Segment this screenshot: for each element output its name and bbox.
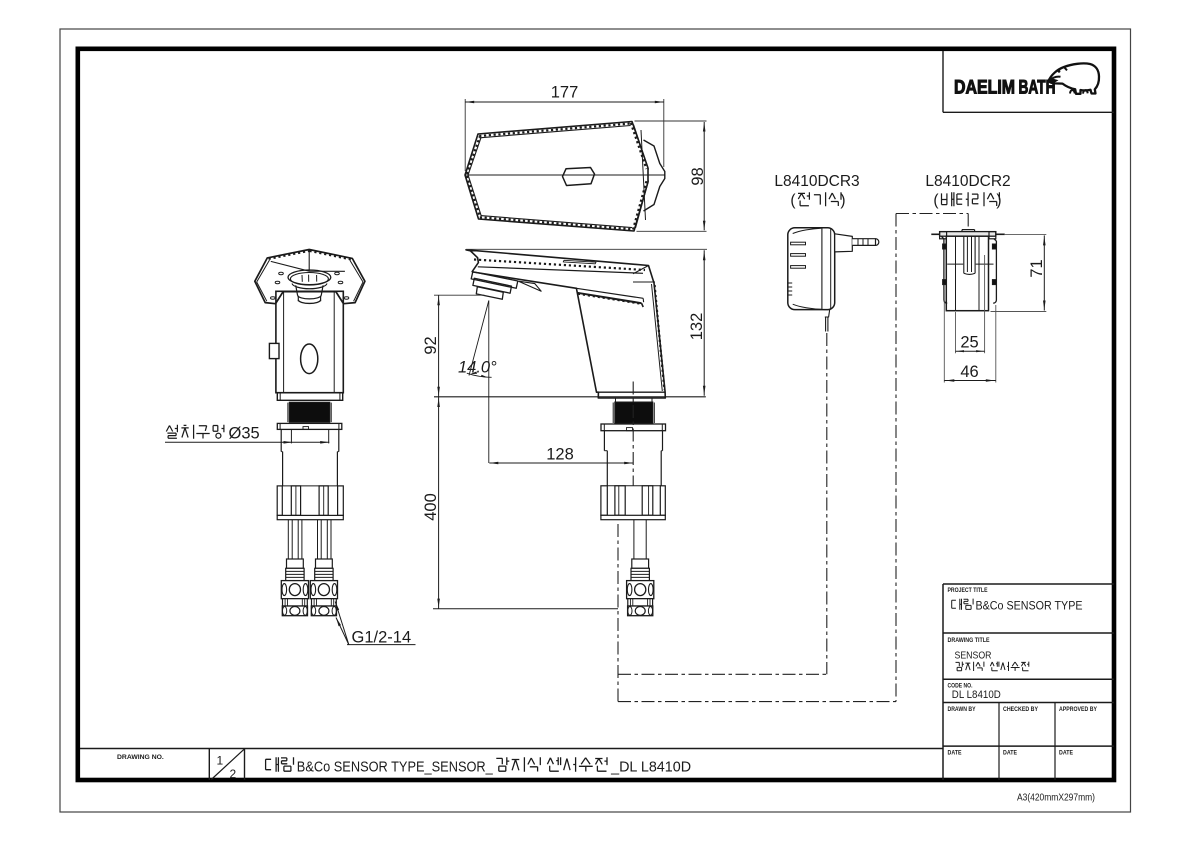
- svg-text:CHECKED BY: CHECKED BY: [1003, 706, 1039, 713]
- svg-text:DATE: DATE: [1003, 750, 1018, 757]
- svg-text:Ø35: Ø35: [229, 425, 260, 443]
- svg-text:L8410DCR3: L8410DCR3: [774, 173, 859, 190]
- svg-text:98: 98: [689, 167, 707, 185]
- svg-text:71: 71: [1028, 259, 1046, 277]
- svg-text:14.0°: 14.0°: [458, 359, 497, 377]
- svg-text:): ): [840, 192, 845, 209]
- svg-text:A3(420mmX297mm): A3(420mmX297mm): [1017, 792, 1095, 804]
- svg-text:SENSOR: SENSOR: [955, 651, 992, 662]
- svg-text:DL L8410D: DL L8410D: [952, 689, 1001, 701]
- svg-text:177: 177: [551, 84, 579, 102]
- svg-text:DRAWING TITLE: DRAWING TITLE: [948, 637, 991, 644]
- svg-text:DAELIM: DAELIM: [954, 77, 1015, 99]
- svg-text:2: 2: [230, 767, 237, 781]
- svg-text:G1/2-14: G1/2-14: [352, 629, 412, 647]
- svg-text:92: 92: [422, 336, 440, 354]
- svg-text:APPROVED BY: APPROVED BY: [1059, 706, 1098, 713]
- svg-text:B&Co SENSOR TYPE_SENSOR_: B&Co SENSOR TYPE_SENSOR_: [297, 759, 494, 776]
- svg-text:DRAWING NO.: DRAWING NO.: [117, 754, 164, 761]
- svg-text:L8410DCR2: L8410DCR2: [925, 173, 1010, 190]
- svg-text:B&Co SENSOR TYPE: B&Co SENSOR TYPE: [976, 601, 1083, 613]
- svg-text:(: (: [790, 192, 796, 209]
- svg-text:46: 46: [960, 363, 978, 381]
- svg-text:400: 400: [422, 493, 440, 521]
- svg-text:25: 25: [960, 334, 978, 352]
- svg-text:DATE: DATE: [1059, 750, 1074, 757]
- svg-text:(: (: [933, 192, 939, 209]
- svg-text:128: 128: [546, 446, 574, 464]
- svg-text:): ): [996, 192, 1001, 209]
- svg-text:1: 1: [217, 754, 224, 768]
- svg-text:DATE: DATE: [948, 750, 963, 757]
- svg-text:PROJECT TITLE: PROJECT TITLE: [948, 587, 989, 594]
- svg-text:132: 132: [688, 313, 706, 341]
- svg-text:_DL L8410D: _DL L8410D: [610, 759, 691, 776]
- svg-text:DRAWN BY: DRAWN BY: [948, 706, 977, 713]
